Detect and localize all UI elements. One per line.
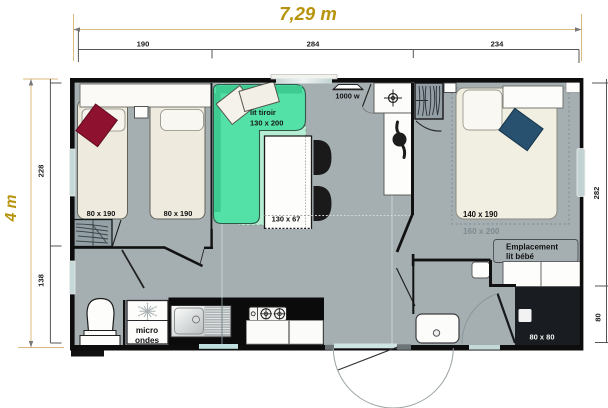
svg-text:lit tiroir: lit tiroir [250, 108, 276, 117]
svg-text:ondes: ondes [135, 336, 160, 345]
svg-text:130 x 200: 130 x 200 [250, 119, 283, 128]
svg-text:4 m: 4 m [3, 194, 20, 222]
svg-text:1000 w: 1000 w [335, 92, 359, 101]
svg-text:Emplacement: Emplacement [506, 243, 558, 252]
svg-text:7,29 m: 7,29 m [279, 3, 337, 24]
svg-text:234: 234 [491, 40, 504, 49]
svg-text:284: 284 [307, 40, 320, 49]
svg-text:micro: micro [136, 326, 158, 335]
svg-text:160 x 200: 160 x 200 [463, 227, 500, 236]
svg-text:80 x 190: 80 x 190 [164, 209, 193, 218]
svg-text:140 x 190: 140 x 190 [463, 210, 498, 219]
svg-text:228: 228 [37, 165, 46, 178]
svg-text:lit bébé: lit bébé [506, 252, 535, 261]
svg-text:80 x 190: 80 x 190 [87, 209, 116, 218]
svg-text:190: 190 [137, 40, 150, 49]
svg-text:282: 282 [592, 187, 601, 200]
svg-text:80 x 80: 80 x 80 [529, 333, 554, 342]
svg-text:80: 80 [594, 313, 603, 321]
svg-text:138: 138 [37, 274, 46, 287]
